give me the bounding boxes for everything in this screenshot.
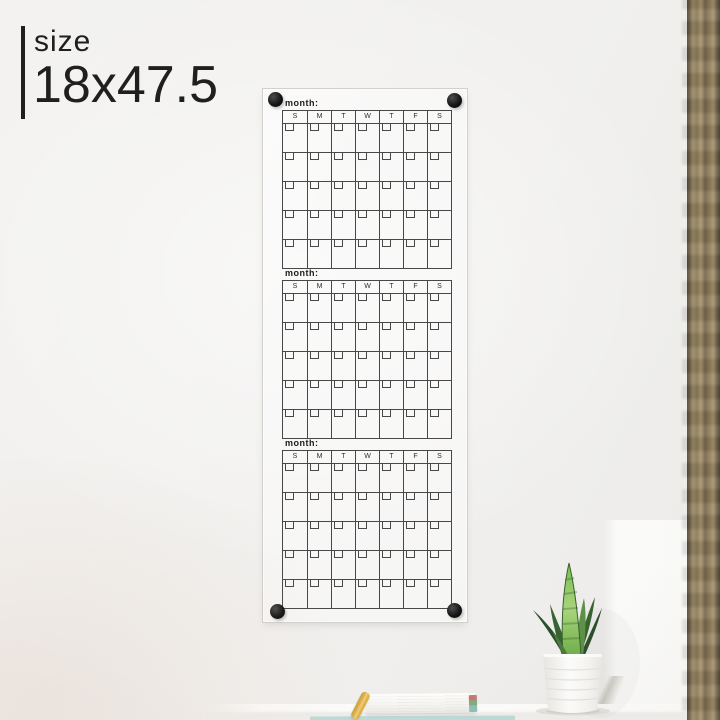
day-cell: [379, 521, 403, 550]
day-header-cell: M: [307, 281, 331, 293]
date-box: [285, 182, 294, 189]
date-box: [310, 352, 319, 359]
date-box: [382, 493, 391, 500]
date-box: [285, 381, 294, 388]
accent-bar: [21, 26, 25, 119]
date-box: [310, 493, 319, 500]
date-box: [358, 211, 367, 218]
date-box: [310, 580, 319, 587]
date-box: [430, 153, 439, 160]
day-cell: [331, 463, 355, 492]
day-cell: [331, 492, 355, 521]
day-cell: [307, 550, 331, 579]
date-box: [310, 381, 319, 388]
date-box: [285, 124, 294, 131]
month-section: month:SMTWTFS: [282, 438, 452, 609]
day-cell: [379, 293, 403, 322]
day-cell: [403, 409, 427, 438]
day-cell: [355, 409, 379, 438]
date-box: [358, 240, 367, 247]
day-cell: [283, 293, 307, 322]
plant-pot: [543, 654, 602, 713]
day-cell: [283, 239, 307, 268]
calendar-grid: SMTWTFS: [282, 110, 452, 269]
calendar-grid: SMTWTFS: [282, 450, 452, 609]
day-cell: [331, 322, 355, 351]
day-header-cell: W: [355, 111, 379, 123]
day-cell: [283, 380, 307, 409]
date-box: [285, 410, 294, 417]
day-cell: [427, 409, 451, 438]
day-cell: [355, 463, 379, 492]
day-header-cell: T: [331, 451, 355, 463]
date-box: [358, 182, 367, 189]
day-cell: [379, 380, 403, 409]
date-box: [430, 381, 439, 388]
day-cell: [379, 181, 403, 210]
date-box: [382, 124, 391, 131]
teal-book: [310, 715, 515, 720]
date-box: [334, 294, 343, 301]
date-box: [310, 182, 319, 189]
standoff-screw-icon: [447, 93, 462, 108]
snake-plant: [505, 548, 645, 720]
date-box: [382, 294, 391, 301]
date-box: [406, 522, 415, 529]
day-cell: [307, 210, 331, 239]
standoff-screw-icon: [447, 603, 462, 618]
day-header-cell: S: [283, 451, 307, 463]
date-box: [285, 580, 294, 587]
date-box: [358, 464, 367, 471]
month-section: month:SMTWTFS: [282, 268, 452, 439]
date-box: [358, 551, 367, 558]
day-cell: [307, 409, 331, 438]
date-box: [406, 464, 415, 471]
date-box: [406, 410, 415, 417]
day-cell: [283, 123, 307, 152]
date-box: [358, 294, 367, 301]
day-cell: [331, 239, 355, 268]
day-cell: [283, 492, 307, 521]
date-box: [310, 294, 319, 301]
day-cell: [355, 293, 379, 322]
date-box: [358, 580, 367, 587]
day-cell: [427, 492, 451, 521]
date-box: [358, 352, 367, 359]
day-header-cell: T: [379, 281, 403, 293]
day-cell: [331, 521, 355, 550]
day-header-cell: S: [283, 281, 307, 293]
day-cell: [307, 152, 331, 181]
day-cell: [331, 123, 355, 152]
date-box: [406, 182, 415, 189]
date-box: [358, 522, 367, 529]
day-cell: [283, 152, 307, 181]
day-cell: [355, 579, 379, 608]
day-cell: [379, 239, 403, 268]
day-cell: [283, 181, 307, 210]
size-heading: size: [34, 27, 91, 57]
date-box: [285, 522, 294, 529]
day-header-cell: F: [403, 281, 427, 293]
day-cell: [307, 293, 331, 322]
date-box: [382, 323, 391, 330]
month-label: month:: [285, 268, 452, 280]
date-box: [334, 323, 343, 330]
day-cell: [403, 293, 427, 322]
date-box: [430, 410, 439, 417]
date-box: [358, 493, 367, 500]
day-cell: [403, 550, 427, 579]
date-box: [334, 124, 343, 131]
date-box: [334, 153, 343, 160]
day-cell: [403, 463, 427, 492]
day-cell: [427, 463, 451, 492]
day-cell: [283, 521, 307, 550]
date-box: [430, 464, 439, 471]
day-cell: [427, 210, 451, 239]
day-header-cell: T: [379, 111, 403, 123]
day-cell: [379, 492, 403, 521]
day-cell: [403, 579, 427, 608]
day-header-cell: T: [379, 451, 403, 463]
day-cell: [355, 351, 379, 380]
date-box: [310, 410, 319, 417]
month-label: month:: [285, 98, 452, 110]
day-cell: [355, 181, 379, 210]
date-box: [382, 352, 391, 359]
day-cell: [331, 380, 355, 409]
day-cell: [403, 181, 427, 210]
date-box: [430, 522, 439, 529]
date-box: [382, 240, 391, 247]
wood-trim: [687, 0, 720, 720]
day-cell: [427, 239, 451, 268]
date-box: [382, 464, 391, 471]
date-box: [430, 211, 439, 218]
date-box: [382, 580, 391, 587]
date-box: [382, 182, 391, 189]
date-box: [406, 211, 415, 218]
date-box: [382, 410, 391, 417]
day-cell: [331, 293, 355, 322]
day-cell: [403, 351, 427, 380]
date-box: [430, 551, 439, 558]
day-cell: [403, 492, 427, 521]
date-box: [285, 493, 294, 500]
day-cell: [283, 463, 307, 492]
day-cell: [403, 521, 427, 550]
white-book: [366, 692, 476, 713]
day-cell: [427, 293, 451, 322]
date-box: [334, 493, 343, 500]
date-box: [358, 323, 367, 330]
day-header-cell: T: [331, 281, 355, 293]
day-cell: [427, 123, 451, 152]
date-box: [382, 522, 391, 529]
date-box: [358, 124, 367, 131]
date-box: [310, 153, 319, 160]
day-cell: [283, 210, 307, 239]
date-box: [406, 580, 415, 587]
day-cell: [307, 492, 331, 521]
day-cell: [355, 322, 379, 351]
standoff-screw-icon: [270, 604, 285, 619]
day-cell: [331, 181, 355, 210]
day-cell: [427, 181, 451, 210]
day-cell: [403, 152, 427, 181]
date-box: [334, 551, 343, 558]
day-cell: [331, 210, 355, 239]
date-box: [406, 124, 415, 131]
date-box: [406, 352, 415, 359]
date-box: [334, 522, 343, 529]
date-box: [310, 240, 319, 247]
wood-grain-texture: [682, 0, 720, 720]
day-cell: [331, 550, 355, 579]
day-cell: [403, 210, 427, 239]
date-box: [406, 493, 415, 500]
day-cell: [331, 351, 355, 380]
day-cell: [403, 123, 427, 152]
date-box: [406, 294, 415, 301]
day-cell: [379, 123, 403, 152]
day-cell: [307, 239, 331, 268]
day-cell: [427, 322, 451, 351]
day-cell: [283, 550, 307, 579]
date-box: [310, 551, 319, 558]
day-cell: [379, 322, 403, 351]
date-box: [430, 182, 439, 189]
day-cell: [427, 579, 451, 608]
month-label: month:: [285, 438, 452, 450]
day-header-cell: S: [283, 111, 307, 123]
date-box: [406, 551, 415, 558]
day-cell: [379, 210, 403, 239]
date-box: [406, 381, 415, 388]
day-cell: [307, 579, 331, 608]
date-box: [430, 493, 439, 500]
date-box: [310, 522, 319, 529]
date-box: [430, 124, 439, 131]
date-box: [430, 580, 439, 587]
day-cell: [379, 152, 403, 181]
day-cell: [427, 521, 451, 550]
date-box: [358, 381, 367, 388]
date-box: [430, 352, 439, 359]
day-cell: [307, 181, 331, 210]
day-cell: [307, 322, 331, 351]
day-cell: [355, 550, 379, 579]
day-cell: [379, 409, 403, 438]
day-header-cell: F: [403, 451, 427, 463]
date-box: [334, 211, 343, 218]
day-cell: [355, 152, 379, 181]
date-box: [406, 153, 415, 160]
pot-rim-highlight: [543, 654, 602, 657]
day-cell: [427, 380, 451, 409]
day-cell: [403, 239, 427, 268]
date-box: [285, 211, 294, 218]
day-cell: [379, 579, 403, 608]
day-cell: [307, 521, 331, 550]
day-cell: [307, 123, 331, 152]
day-cell: [307, 351, 331, 380]
day-cell: [403, 380, 427, 409]
day-cell: [283, 579, 307, 608]
day-cell: [355, 239, 379, 268]
calendar-grid: SMTWTFS: [282, 280, 452, 439]
date-box: [334, 580, 343, 587]
day-cell: [331, 152, 355, 181]
day-cell: [427, 152, 451, 181]
size-value: 18x47.5: [33, 59, 218, 111]
product-photo-scene: size 18x47.5 month:SMTWTFSmonth:SMTWTFSm…: [0, 0, 720, 720]
date-box: [382, 551, 391, 558]
day-cell: [403, 322, 427, 351]
day-header-cell: M: [307, 451, 331, 463]
day-cell: [331, 579, 355, 608]
date-box: [310, 464, 319, 471]
date-box: [334, 352, 343, 359]
date-box: [430, 294, 439, 301]
day-cell: [355, 210, 379, 239]
date-box: [310, 323, 319, 330]
date-box: [334, 381, 343, 388]
day-cell: [307, 380, 331, 409]
day-header-cell: W: [355, 281, 379, 293]
date-box: [430, 323, 439, 330]
date-box: [406, 240, 415, 247]
day-cell: [283, 351, 307, 380]
day-cell: [379, 463, 403, 492]
date-box: [334, 182, 343, 189]
date-box: [382, 381, 391, 388]
date-box: [334, 464, 343, 471]
date-box: [382, 153, 391, 160]
month-section: month:SMTWTFS: [282, 98, 452, 269]
date-box: [406, 323, 415, 330]
day-header-cell: F: [403, 111, 427, 123]
day-cell: [283, 409, 307, 438]
date-box: [358, 410, 367, 417]
day-cell: [331, 409, 355, 438]
date-box: [285, 323, 294, 330]
date-box: [310, 124, 319, 131]
day-cell: [283, 322, 307, 351]
date-box: [285, 352, 294, 359]
day-cell: [355, 521, 379, 550]
day-cell: [427, 351, 451, 380]
day-header-cell: S: [427, 451, 451, 463]
date-box: [334, 410, 343, 417]
standoff-screw-icon: [268, 92, 283, 107]
day-header-cell: T: [331, 111, 355, 123]
calendar-board: month:SMTWTFSmonth:SMTWTFSmonth:SMTWTFS: [262, 88, 468, 623]
day-header-cell: S: [427, 111, 451, 123]
day-header-cell: S: [427, 281, 451, 293]
date-box: [358, 153, 367, 160]
day-header-cell: W: [355, 451, 379, 463]
day-cell: [427, 550, 451, 579]
date-box: [285, 464, 294, 471]
day-cell: [307, 463, 331, 492]
date-box: [310, 211, 319, 218]
date-box: [334, 240, 343, 247]
day-header-cell: M: [307, 111, 331, 123]
date-box: [285, 551, 294, 558]
day-cell: [379, 351, 403, 380]
day-cell: [355, 492, 379, 521]
date-box: [285, 153, 294, 160]
date-box: [430, 240, 439, 247]
date-box: [285, 240, 294, 247]
day-cell: [355, 123, 379, 152]
day-cell: [379, 550, 403, 579]
date-box: [382, 211, 391, 218]
day-cell: [355, 380, 379, 409]
book-page-tabs: [469, 695, 478, 712]
date-box: [285, 294, 294, 301]
